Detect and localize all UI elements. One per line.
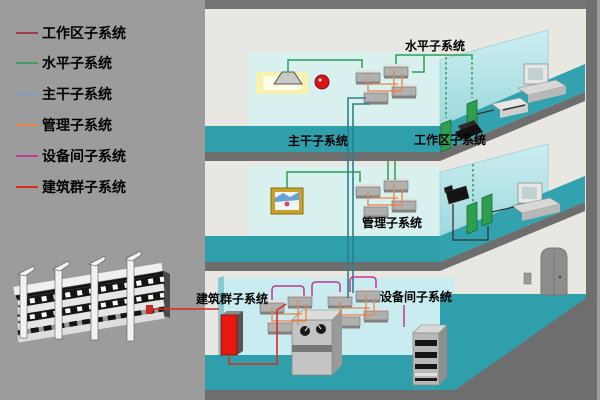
legend-label-backbone: 主干子系统 xyxy=(42,86,112,103)
wall-picture-icon xyxy=(271,188,303,214)
campus-entrance-box xyxy=(221,311,243,355)
floor2-slab-edge xyxy=(205,262,440,271)
label-backbone-subsystem: 主干子系统 xyxy=(288,133,348,148)
label-equipment-room-subsystem: 设备间子系统 xyxy=(380,289,452,304)
floor2-slab-band xyxy=(205,236,440,262)
wall-outlet-icon xyxy=(482,194,492,226)
wall-outlet-icon xyxy=(467,202,477,234)
label-horizontal-subsystem: 水平子系统 xyxy=(405,38,465,53)
cabling-system-diagram: 工作区子系统 水平子系统 主干子系统 管理子系统 设备间子系统 建筑群子系统 xyxy=(0,0,600,400)
label-campus-subsystem: 建筑群子系统 xyxy=(195,291,268,306)
pbx-cabinet-icon xyxy=(292,310,342,375)
screenshot-root: 工作区子系统 水平子系统 主干子系统 管理子系统 设备间子系统 建筑群子系统 xyxy=(0,0,600,400)
label-management-subsystem: 管理子系统 xyxy=(362,215,422,230)
floor1-slab-edge xyxy=(205,152,440,161)
ceiling-bar xyxy=(205,0,597,9)
legend-label-horizontal: 水平子系统 xyxy=(42,55,112,72)
door-icon xyxy=(541,248,567,295)
legend-label-campus: 建筑群子系统 xyxy=(42,179,126,196)
legend-label-work-area: 工作区子系统 xyxy=(42,25,126,42)
label-work-area-subsystem: 工作区子系统 xyxy=(414,132,486,147)
ceiling-lamp xyxy=(256,72,308,94)
building-cutaway: 水平子系统 主干子系统 工作区子系统 管理子系统 建筑群子系统 设备间子系统 xyxy=(147,0,597,400)
legend-label-management: 管理子系统 xyxy=(42,117,112,134)
alarm-bell-icon xyxy=(315,75,329,89)
wall-fixture-icon xyxy=(524,273,531,284)
legend-label-equipment-room: 设备间子系统 xyxy=(42,148,126,165)
server-rack-icon xyxy=(413,325,447,385)
